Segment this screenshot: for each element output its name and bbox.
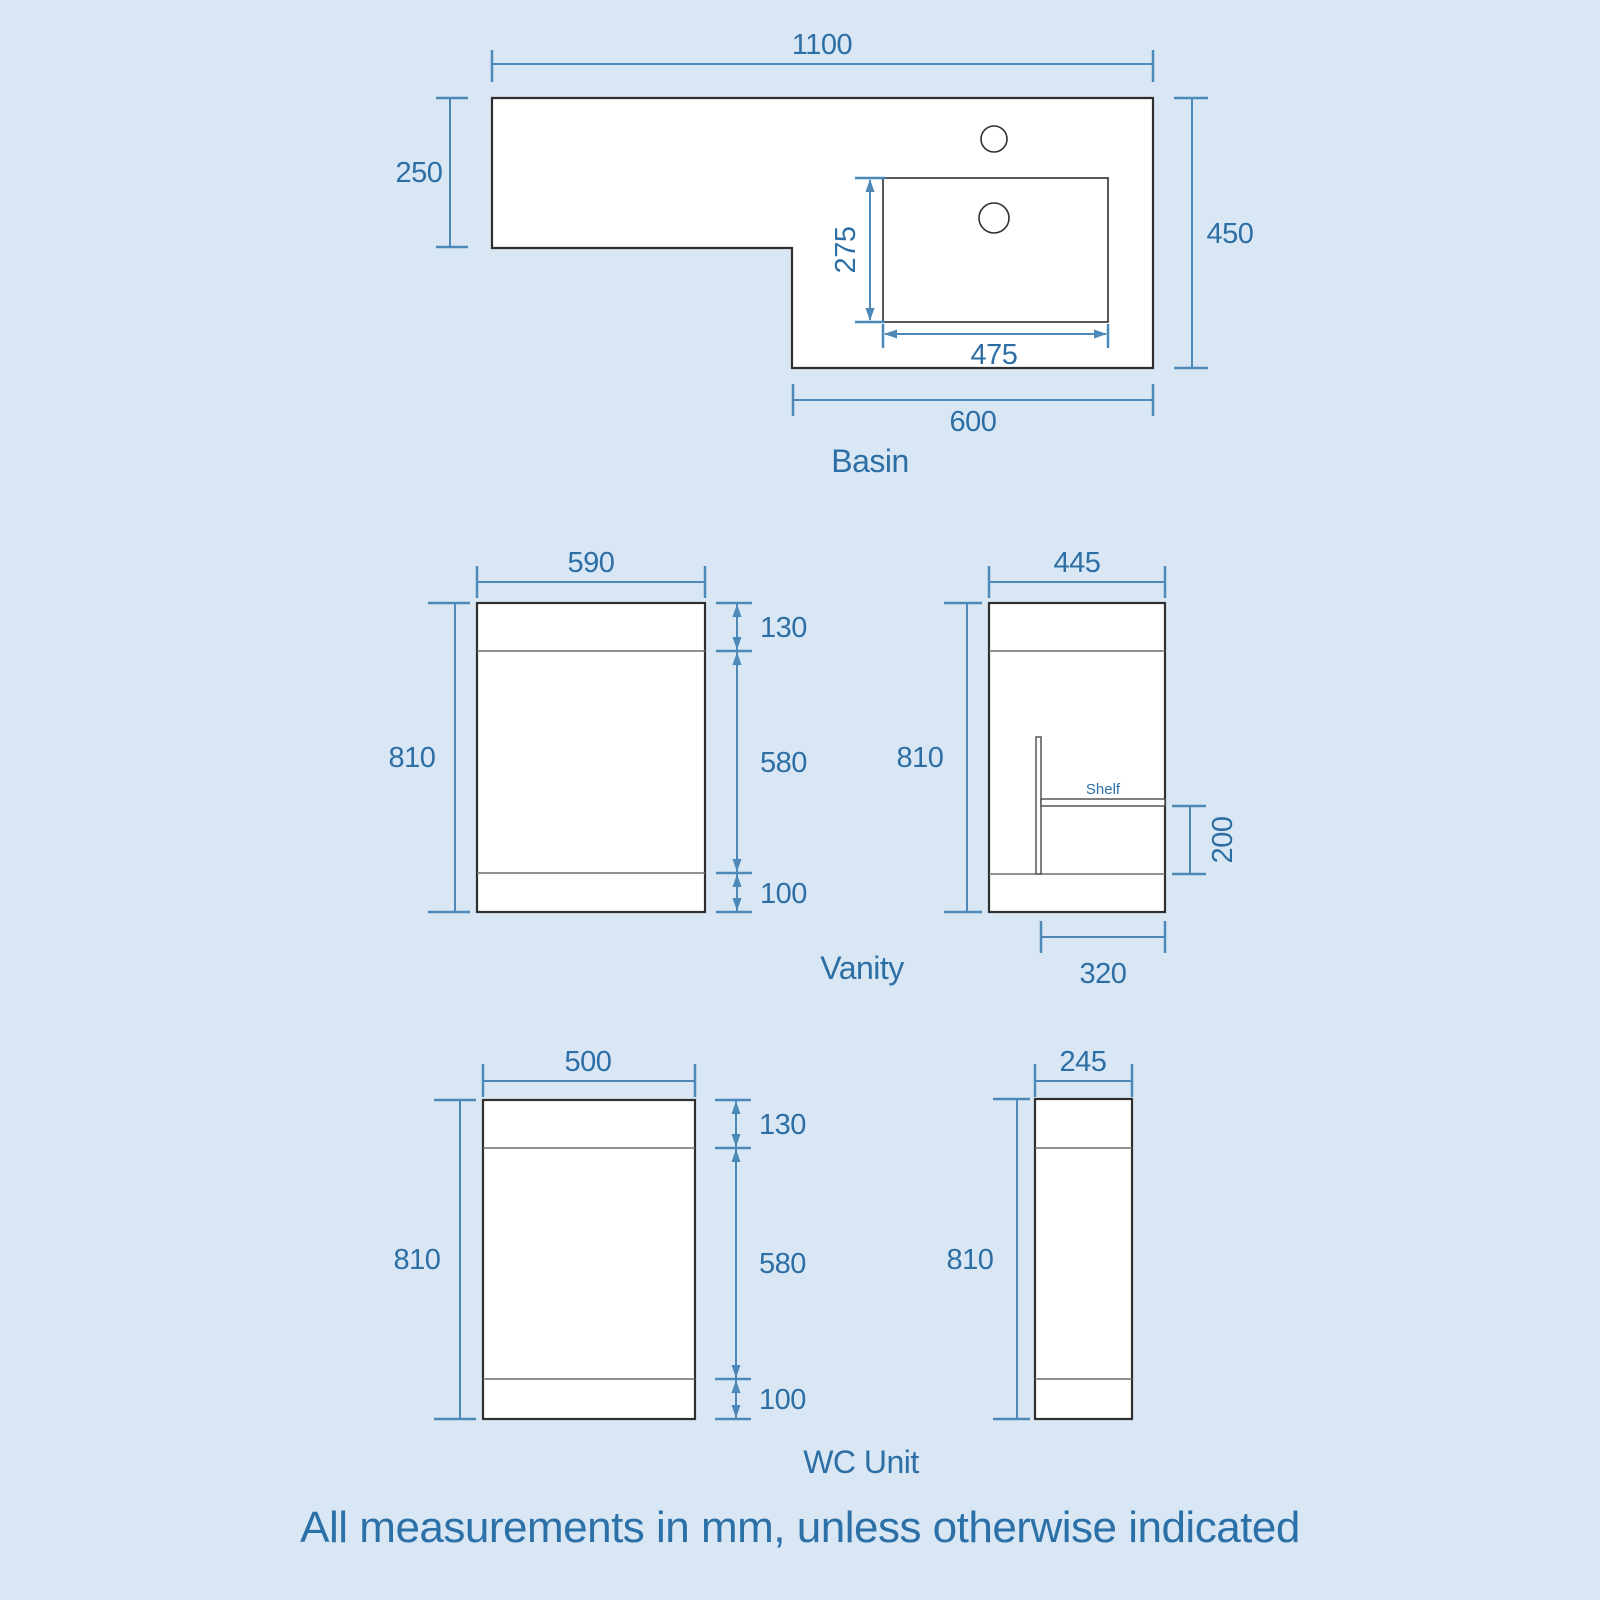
basin-dim-right-section-width: 600 [793,384,1153,438]
vanity-dim-shelf-height: 200 [1172,806,1239,874]
wc-dim-width: 500 [483,1046,695,1097]
wc-front-view: 500 810 130 580 100 [394,1046,806,1419]
wc-dim-segments: 130 580 100 [715,1100,806,1419]
vanity-section-label: Vanity [820,950,904,986]
tap-hole-icon [981,126,1007,152]
vanity-shelf [1041,799,1165,806]
vanity-side-dim-height-label: 810 [897,742,944,774]
wc-dim-height: 810 [394,1100,476,1419]
vanity-side-dim-width: 445 [989,547,1165,598]
vanity-dim-width-label: 590 [568,547,615,579]
basin-section-label: Basin [831,443,909,479]
basin-dim-right-depth: 450 [1174,98,1253,368]
diagram-svg: 1100 250 450 275 [0,0,1600,1600]
wc-dim-height-label: 810 [394,1244,441,1276]
vanity-dim-bottom-segment-label: 100 [760,878,807,910]
vanity-side-outline [989,603,1165,912]
vanity-dim-shelf-depth-label: 320 [1080,958,1127,990]
vanity-front-view: 590 810 130 580 100 [389,547,807,912]
wc-section-label: WC Unit [803,1444,919,1480]
wc-side-dim-height: 810 [947,1099,1030,1419]
footer-note: All measurements in mm, unless otherwise… [300,1503,1300,1552]
wc-side-dim-height-label: 810 [947,1244,994,1276]
wc-side-dim-width: 245 [1035,1046,1132,1097]
vanity-dim-shelf-depth: 320 [1041,921,1165,990]
basin-dim-bowl-depth-label: 275 [830,227,862,274]
basin-bowl-outline [883,178,1108,322]
wc-dim-bottom-segment-label: 100 [759,1384,806,1416]
vanity-dim-height: 810 [389,603,470,912]
vanity-dim-width: 590 [477,547,705,598]
vanity-dim-middle-segment-label: 580 [760,747,807,779]
basin-dim-right-section-width-label: 600 [950,406,997,438]
wc-side-view: 245 810 WC Unit [803,1046,1132,1480]
wc-dim-width-label: 500 [565,1046,612,1078]
vanity-shelf-label: Shelf [1086,781,1121,798]
basin-view: 1100 250 450 275 [396,29,1254,479]
wc-side-outline [1035,1099,1132,1419]
basin-dim-bowl-width-label: 475 [971,339,1018,371]
wc-side-dim-width-label: 245 [1060,1046,1107,1078]
vanity-dim-shelf-height-label: 200 [1207,817,1239,864]
vanity-side-dim-width-label: 445 [1054,547,1101,579]
vanity-door-panel [1036,737,1041,874]
vanity-front-outline [477,603,705,912]
wc-dim-middle-segment-label: 580 [759,1248,806,1280]
vanity-side-view: Shelf 445 810 200 320 V [820,547,1239,990]
vanity-dim-height-label: 810 [389,742,436,774]
basin-dim-left-depth: 250 [396,98,468,247]
waste-hole-icon [979,203,1009,233]
dimension-diagram: 1100 250 450 275 [0,0,1600,1600]
vanity-side-dim-height: 810 [897,603,982,912]
vanity-dim-top-segment-label: 130 [760,612,807,644]
vanity-dim-segments: 130 580 100 [716,603,807,912]
basin-dim-right-depth-label: 450 [1207,218,1254,250]
basin-dim-total-width: 1100 [492,29,1153,82]
basin-dim-left-depth-label: 250 [396,157,443,189]
basin-dim-total-width-label: 1100 [792,29,852,61]
wc-dim-top-segment-label: 130 [759,1109,806,1141]
